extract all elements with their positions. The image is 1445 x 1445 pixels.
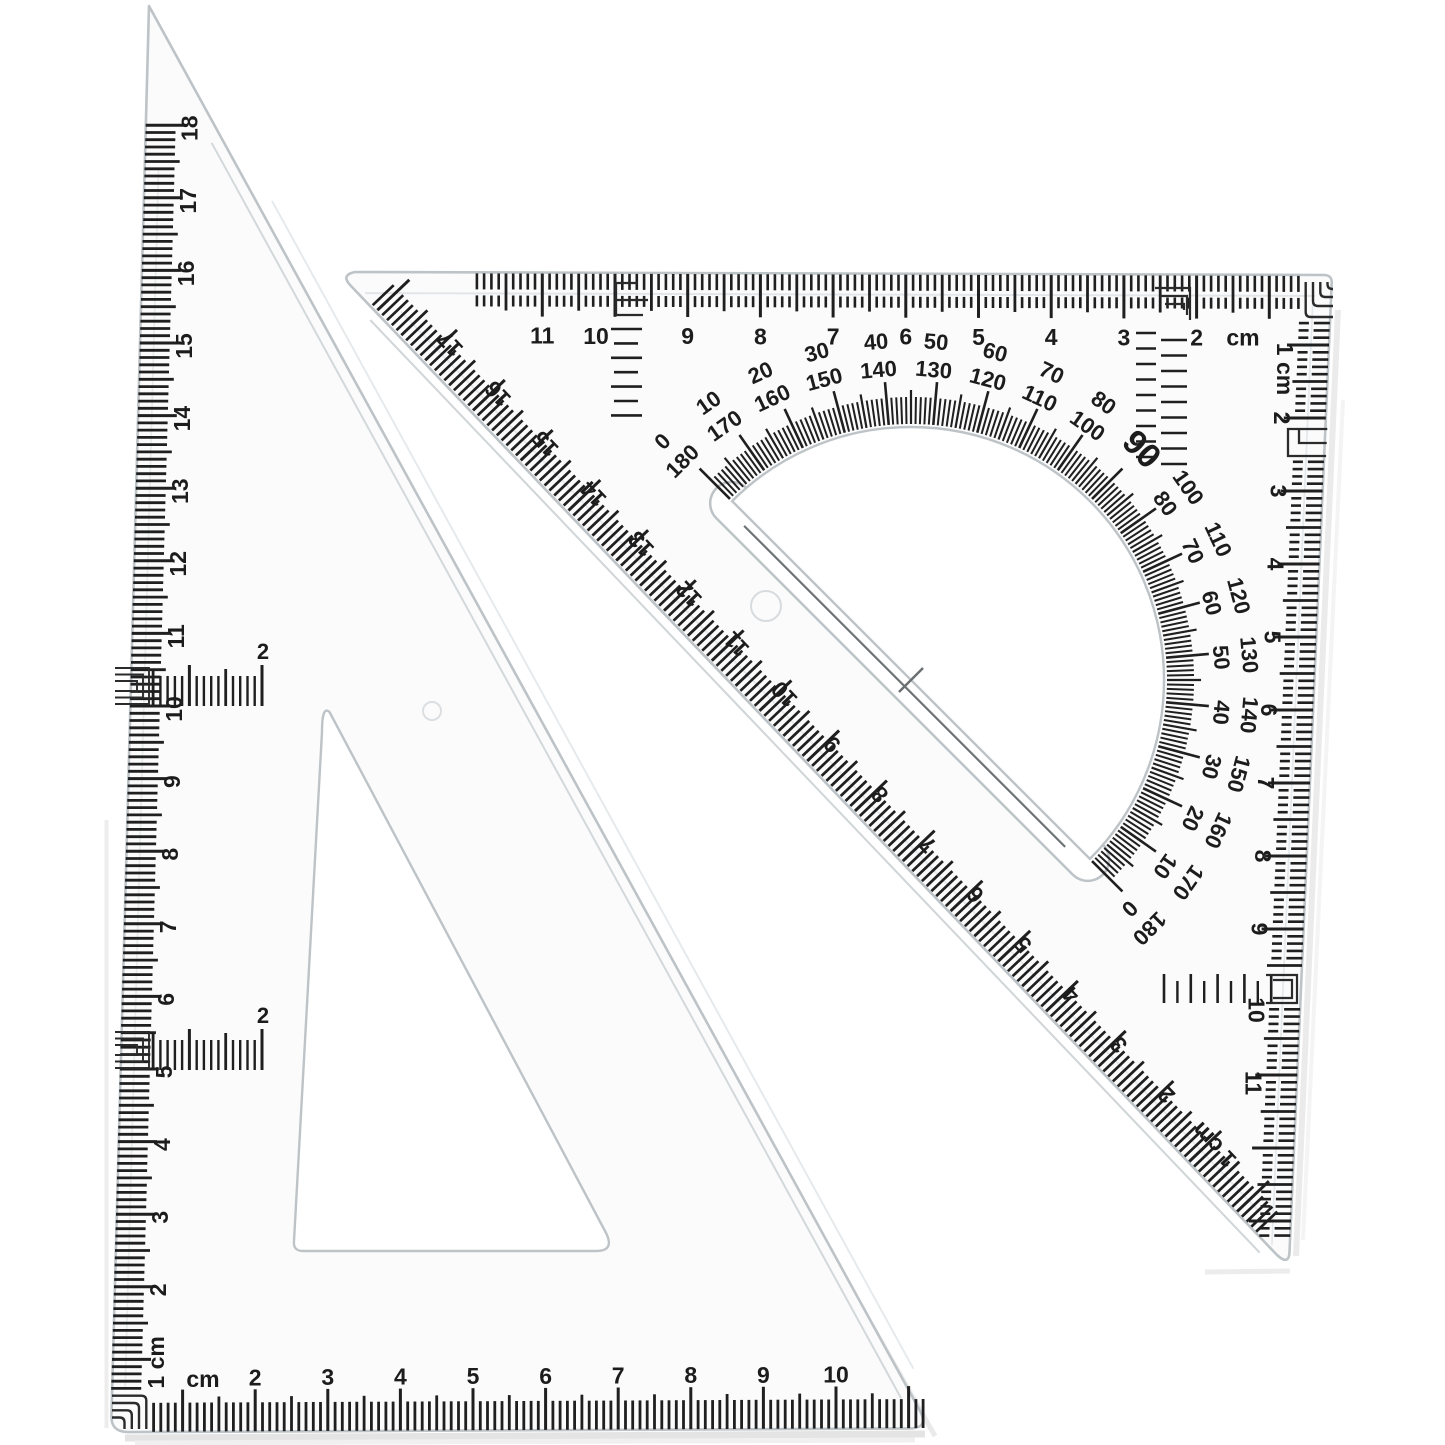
svg-text:40: 40 — [1208, 699, 1235, 726]
svg-text:3: 3 — [1266, 485, 1292, 498]
svg-text:5: 5 — [467, 1363, 480, 1389]
svg-text:7: 7 — [612, 1363, 625, 1389]
svg-text:3: 3 — [147, 1211, 173, 1224]
svg-text:5: 5 — [151, 1065, 177, 1078]
svg-text:1 cm: 1 cm — [1272, 343, 1298, 395]
svg-text:6: 6 — [899, 324, 912, 350]
svg-text:140: 140 — [859, 356, 898, 384]
svg-text:4: 4 — [394, 1364, 407, 1390]
svg-text:3: 3 — [321, 1364, 334, 1390]
svg-text:9: 9 — [681, 323, 694, 349]
svg-text:10: 10 — [1244, 997, 1270, 1023]
svg-text:10: 10 — [823, 1362, 849, 1388]
svg-text:2: 2 — [1190, 325, 1203, 351]
svg-text:5: 5 — [972, 324, 985, 350]
svg-text:9: 9 — [757, 1362, 770, 1388]
svg-text:8: 8 — [754, 323, 767, 349]
svg-text:7: 7 — [1253, 777, 1279, 790]
svg-text:2: 2 — [257, 639, 269, 664]
svg-text:7: 7 — [155, 920, 181, 933]
svg-text:4: 4 — [1263, 558, 1289, 571]
svg-text:130: 130 — [1235, 636, 1263, 675]
svg-text:8: 8 — [1250, 850, 1276, 863]
svg-text:2: 2 — [257, 1003, 269, 1028]
svg-text:9: 9 — [1247, 923, 1273, 936]
svg-text:50: 50 — [923, 328, 950, 355]
svg-text:2: 2 — [249, 1364, 262, 1390]
svg-text:6: 6 — [539, 1363, 552, 1389]
svg-text:18: 18 — [177, 115, 203, 141]
svg-text:2: 2 — [145, 1283, 171, 1296]
svg-text:13: 13 — [167, 478, 193, 504]
svg-text:cm: cm — [186, 1366, 219, 1392]
svg-text:7: 7 — [827, 324, 840, 350]
svg-text:4: 4 — [1045, 324, 1058, 350]
svg-text:8: 8 — [684, 1362, 697, 1388]
svg-text:1 cm: 1 cm — [143, 1336, 169, 1388]
svg-text:40: 40 — [863, 328, 890, 355]
svg-text:12: 12 — [165, 551, 191, 577]
svg-text:4: 4 — [149, 1138, 175, 1151]
svg-text:9: 9 — [159, 775, 185, 788]
svg-text:14: 14 — [169, 406, 195, 432]
svg-text:6: 6 — [153, 993, 179, 1006]
svg-text:11: 11 — [163, 624, 189, 649]
svg-text:130: 130 — [914, 356, 953, 384]
svg-text:11: 11 — [530, 323, 555, 349]
svg-text:2: 2 — [1269, 412, 1295, 425]
svg-text:17: 17 — [175, 188, 201, 214]
svg-text:15: 15 — [171, 333, 197, 359]
svg-text:5: 5 — [1259, 631, 1285, 644]
svg-text:8: 8 — [157, 848, 183, 861]
svg-text:6: 6 — [1256, 704, 1282, 717]
svg-text:16: 16 — [173, 261, 199, 287]
svg-text:cm: cm — [1226, 325, 1259, 351]
svg-text:11: 11 — [1240, 1071, 1266, 1096]
svg-text:3: 3 — [1118, 324, 1131, 350]
svg-text:10: 10 — [583, 323, 609, 349]
svg-text:50: 50 — [1208, 644, 1235, 671]
